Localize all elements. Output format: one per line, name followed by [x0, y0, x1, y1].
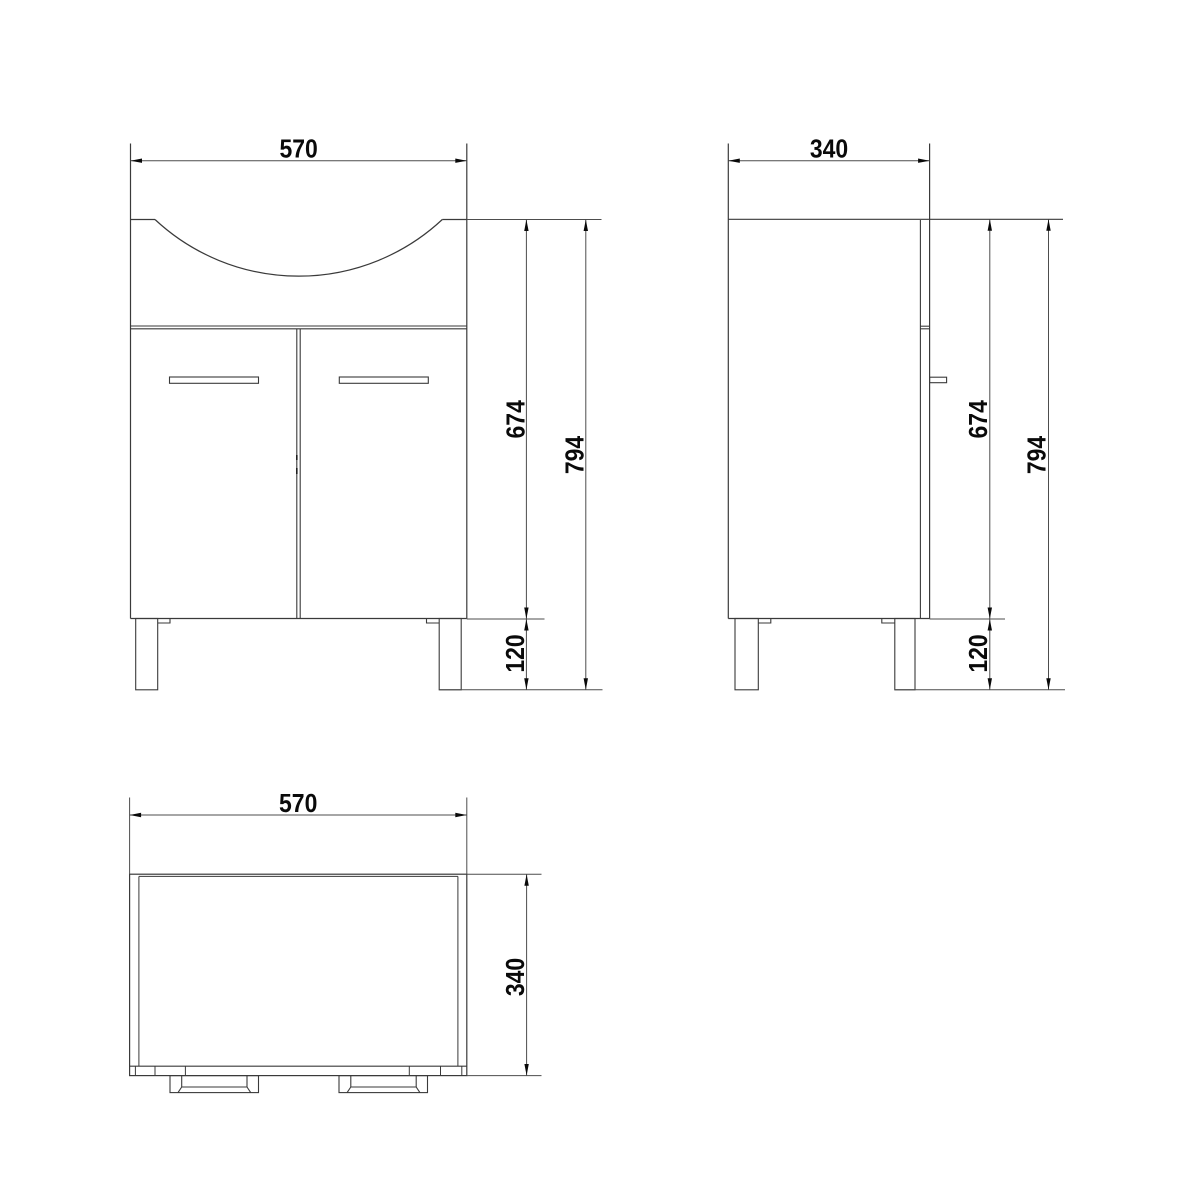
svg-text:340: 340 [810, 134, 848, 164]
svg-text:570: 570 [279, 788, 317, 818]
svg-text:794: 794 [1021, 435, 1051, 474]
svg-text:120: 120 [500, 634, 530, 672]
svg-text:794: 794 [559, 435, 589, 474]
svg-text:570: 570 [279, 134, 317, 164]
svg-text:674: 674 [500, 400, 530, 439]
svg-text:674: 674 [963, 400, 993, 439]
svg-text:340: 340 [500, 958, 530, 996]
svg-text:120: 120 [963, 634, 993, 672]
